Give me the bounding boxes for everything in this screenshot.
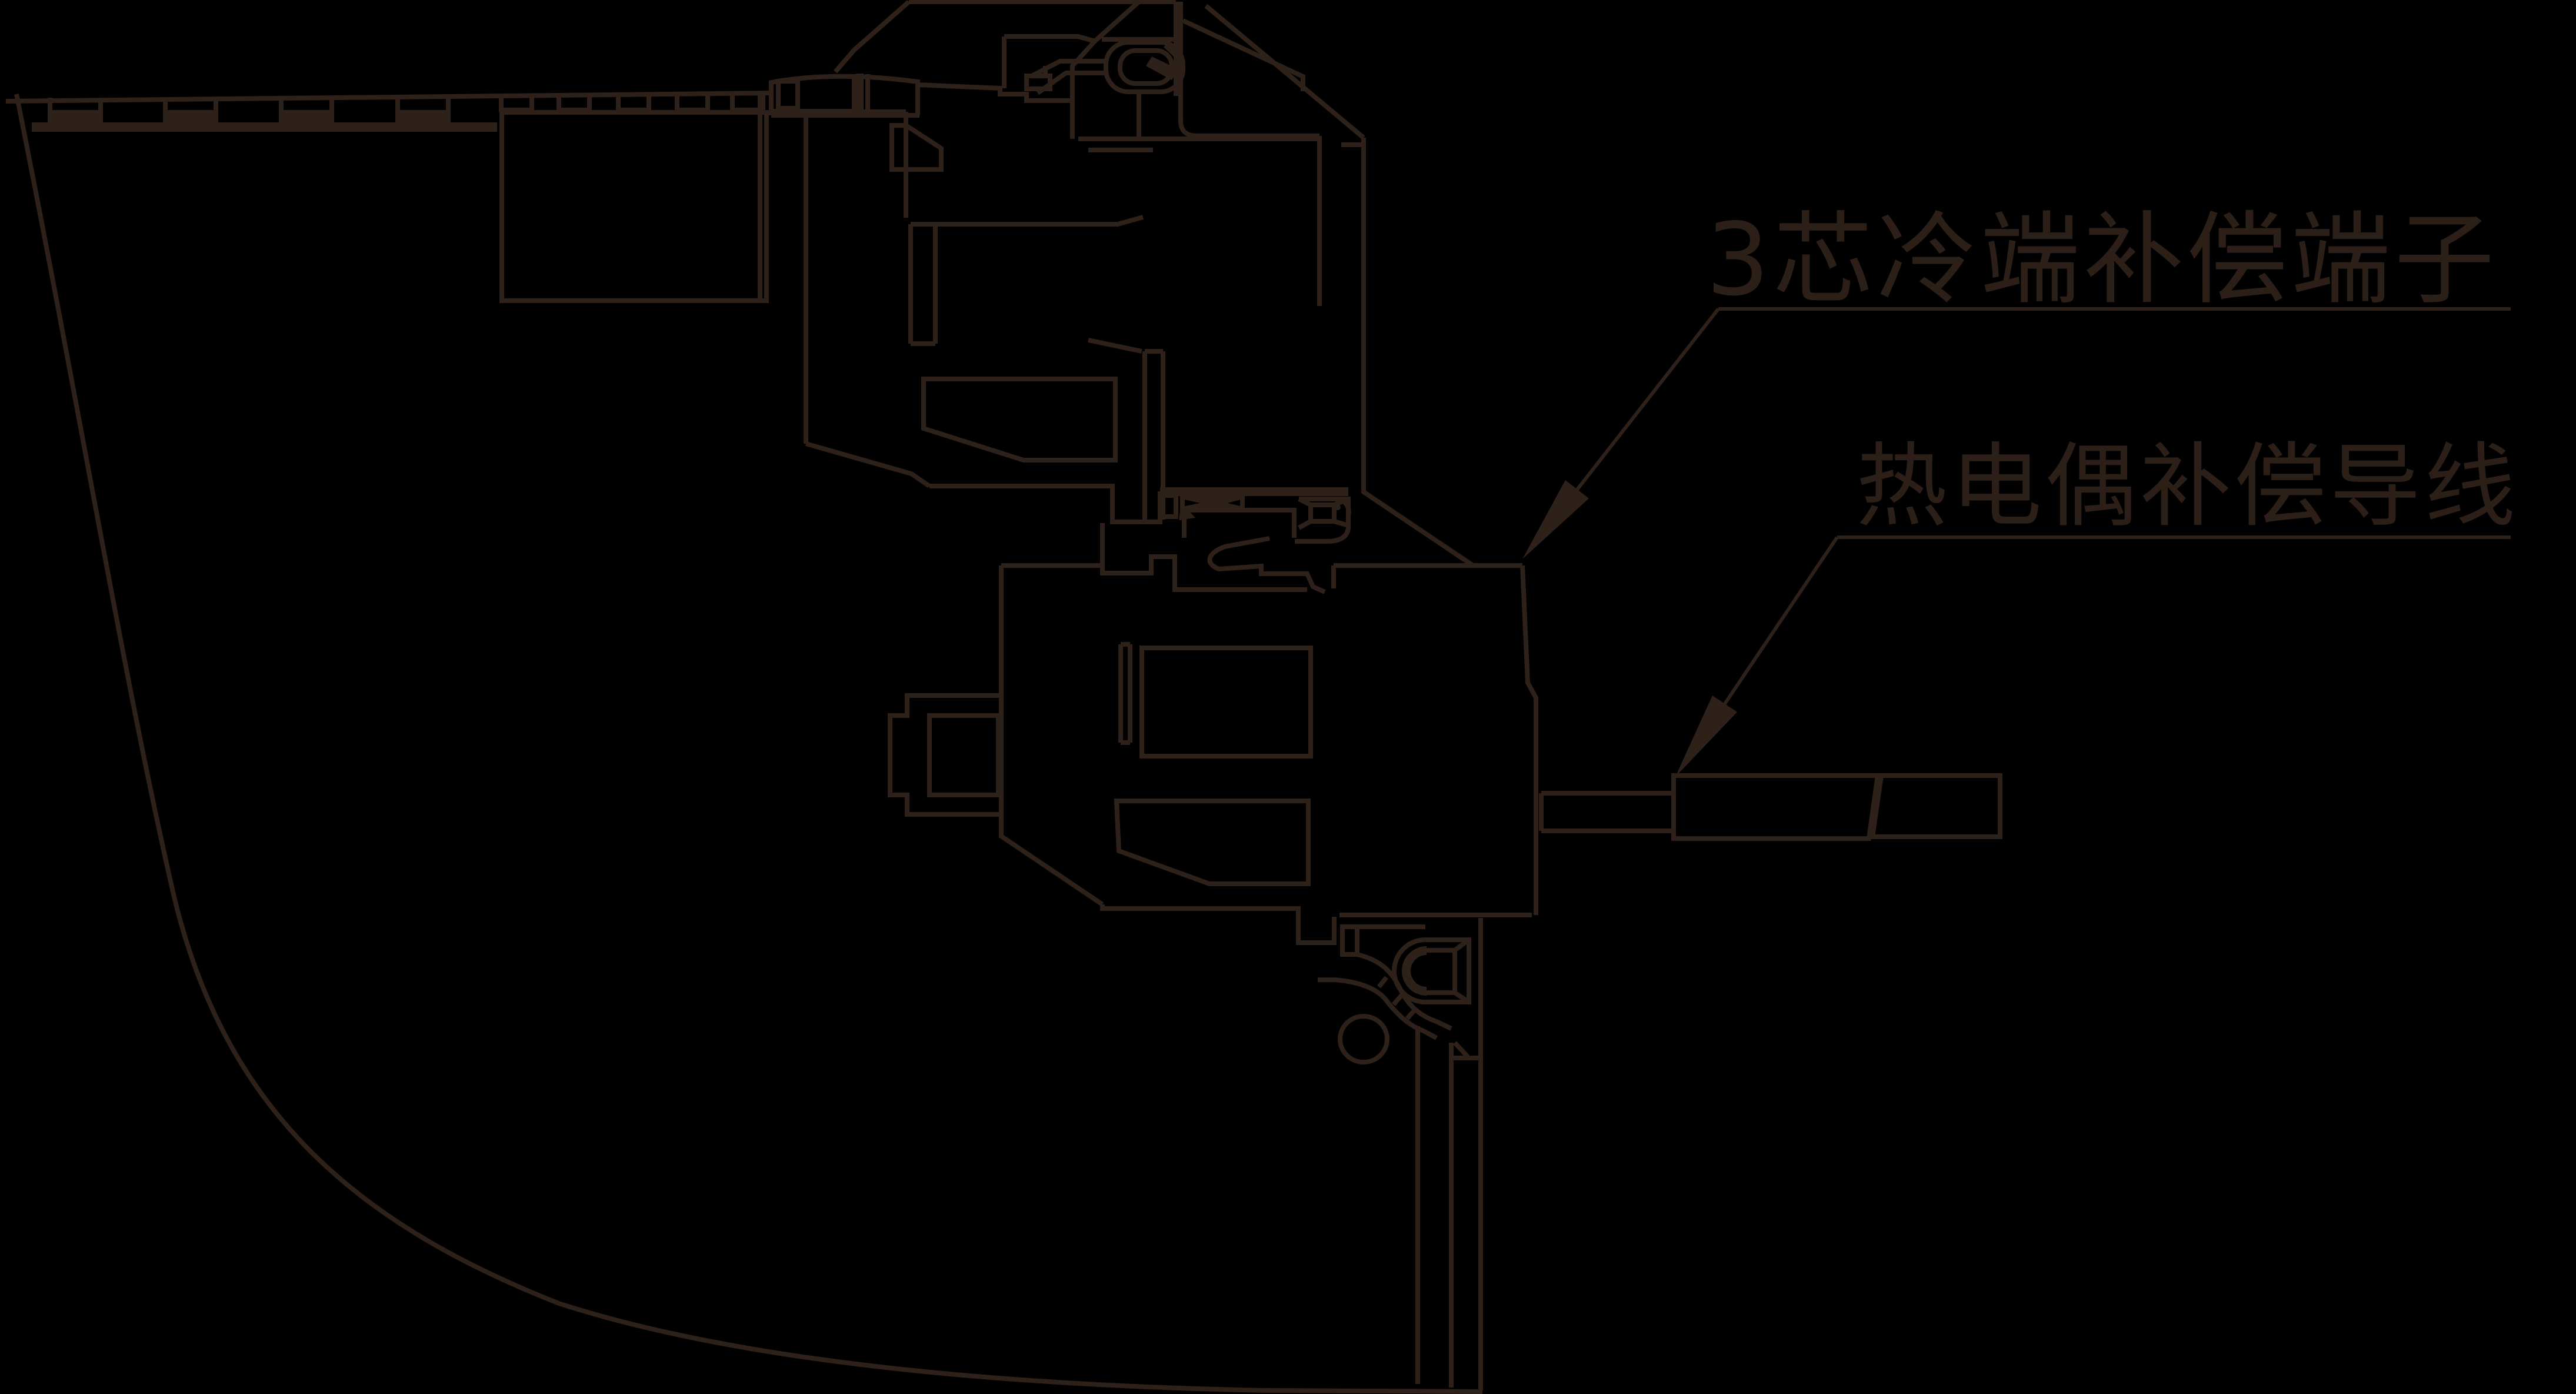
- technical-drawing-page: 3芯冷端补偿端子 热电偶补偿导线: [0, 0, 2576, 1394]
- rail-slot-pad: [166, 110, 215, 120]
- label-thermocouple-compensation-wire: 热电偶补偿导线: [1856, 433, 2519, 540]
- thermocouple-terminal-cross-section-diagram: 3芯冷端补偿端子 热电偶补偿导线: [0, 0, 2576, 1394]
- pivot-dot: [1335, 504, 1341, 510]
- rail-slot-pad: [51, 110, 99, 120]
- label-cold-junction-terminal: 3芯冷端补偿端子: [1706, 202, 2498, 318]
- rail-slot-pad: [399, 110, 447, 120]
- rail-slot-pad: [282, 110, 331, 120]
